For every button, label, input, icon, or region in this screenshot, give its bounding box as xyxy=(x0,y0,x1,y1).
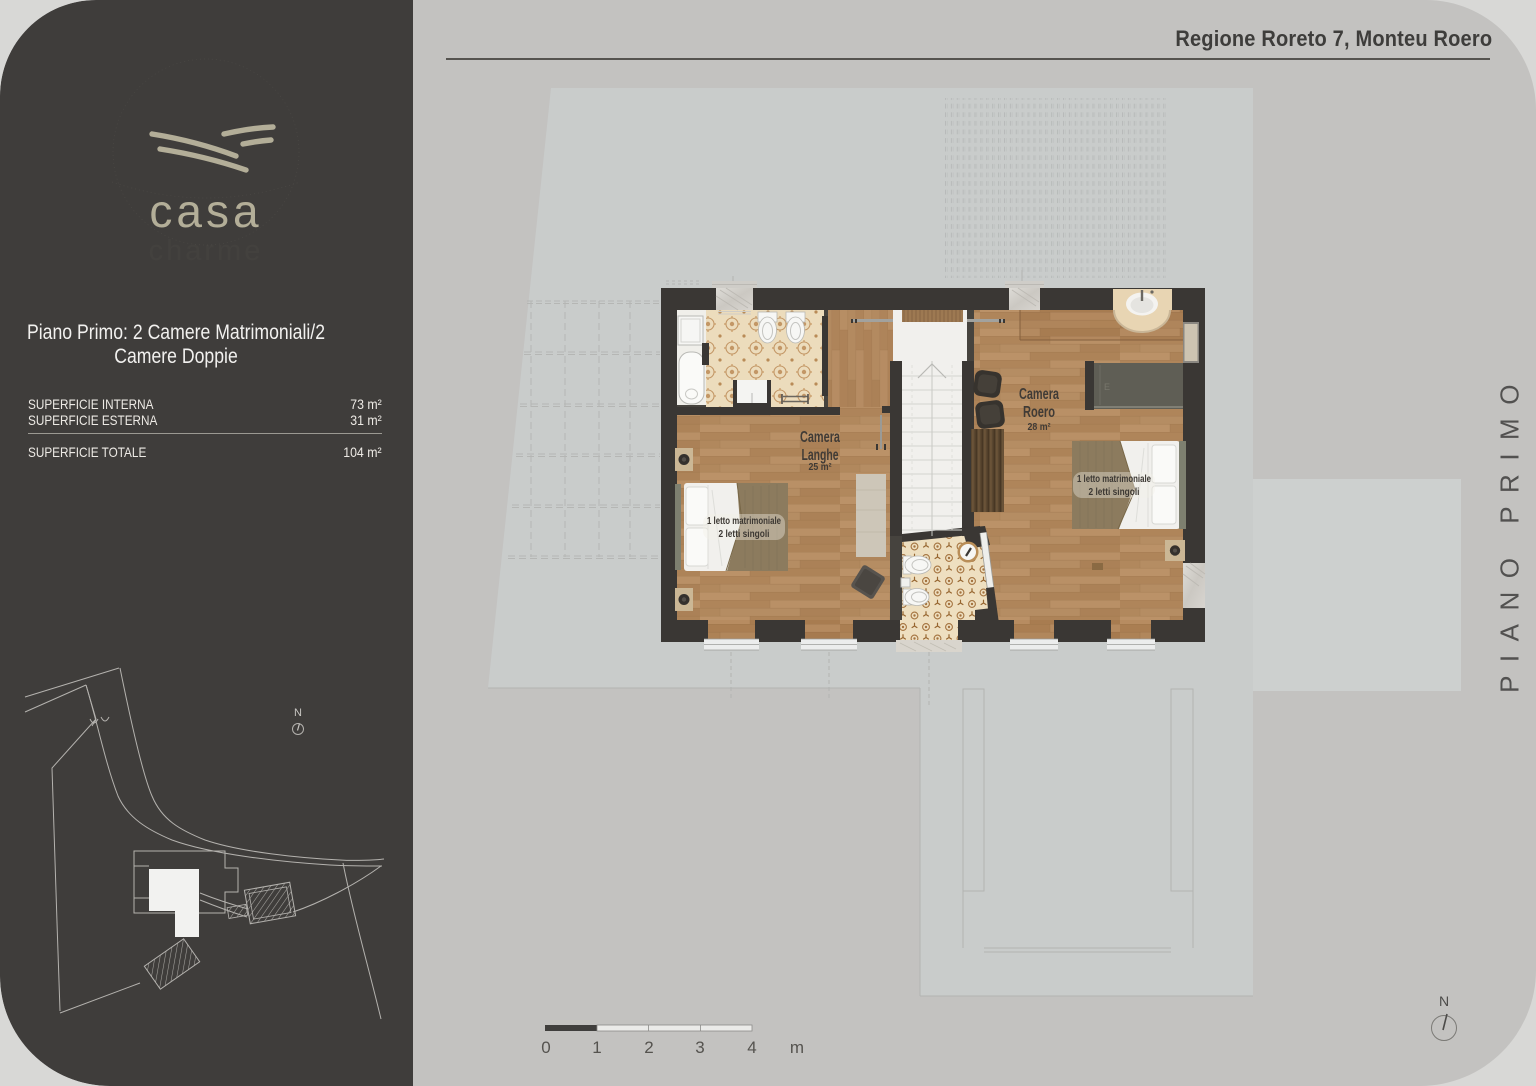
svg-text:3: 3 xyxy=(695,1038,704,1057)
svg-text:2: 2 xyxy=(644,1038,653,1057)
svg-text:0: 0 xyxy=(541,1038,550,1057)
svg-text:Camera: Camera xyxy=(1019,386,1059,403)
svg-text:28 m²: 28 m² xyxy=(1028,422,1052,433)
svg-text:1 letto matrimoniale: 1 letto matrimoniale xyxy=(707,515,781,527)
svg-text:4: 4 xyxy=(747,1038,756,1057)
svg-text:Camera: Camera xyxy=(800,429,840,446)
svg-text:N: N xyxy=(1439,993,1449,1009)
svg-text:25 m²: 25 m² xyxy=(809,462,833,473)
svg-text:N: N xyxy=(294,707,302,719)
svg-text:2 letti singoli: 2 letti singoli xyxy=(1089,486,1140,498)
svg-text:Roero: Roero xyxy=(1023,404,1055,421)
svg-text:m: m xyxy=(790,1038,804,1057)
svg-text:1: 1 xyxy=(592,1038,601,1057)
svg-text:2 letti singoli: 2 letti singoli xyxy=(719,528,770,540)
svg-text:1 letto matrimoniale: 1 letto matrimoniale xyxy=(1077,473,1151,485)
svg-text:E: E xyxy=(1104,382,1110,392)
